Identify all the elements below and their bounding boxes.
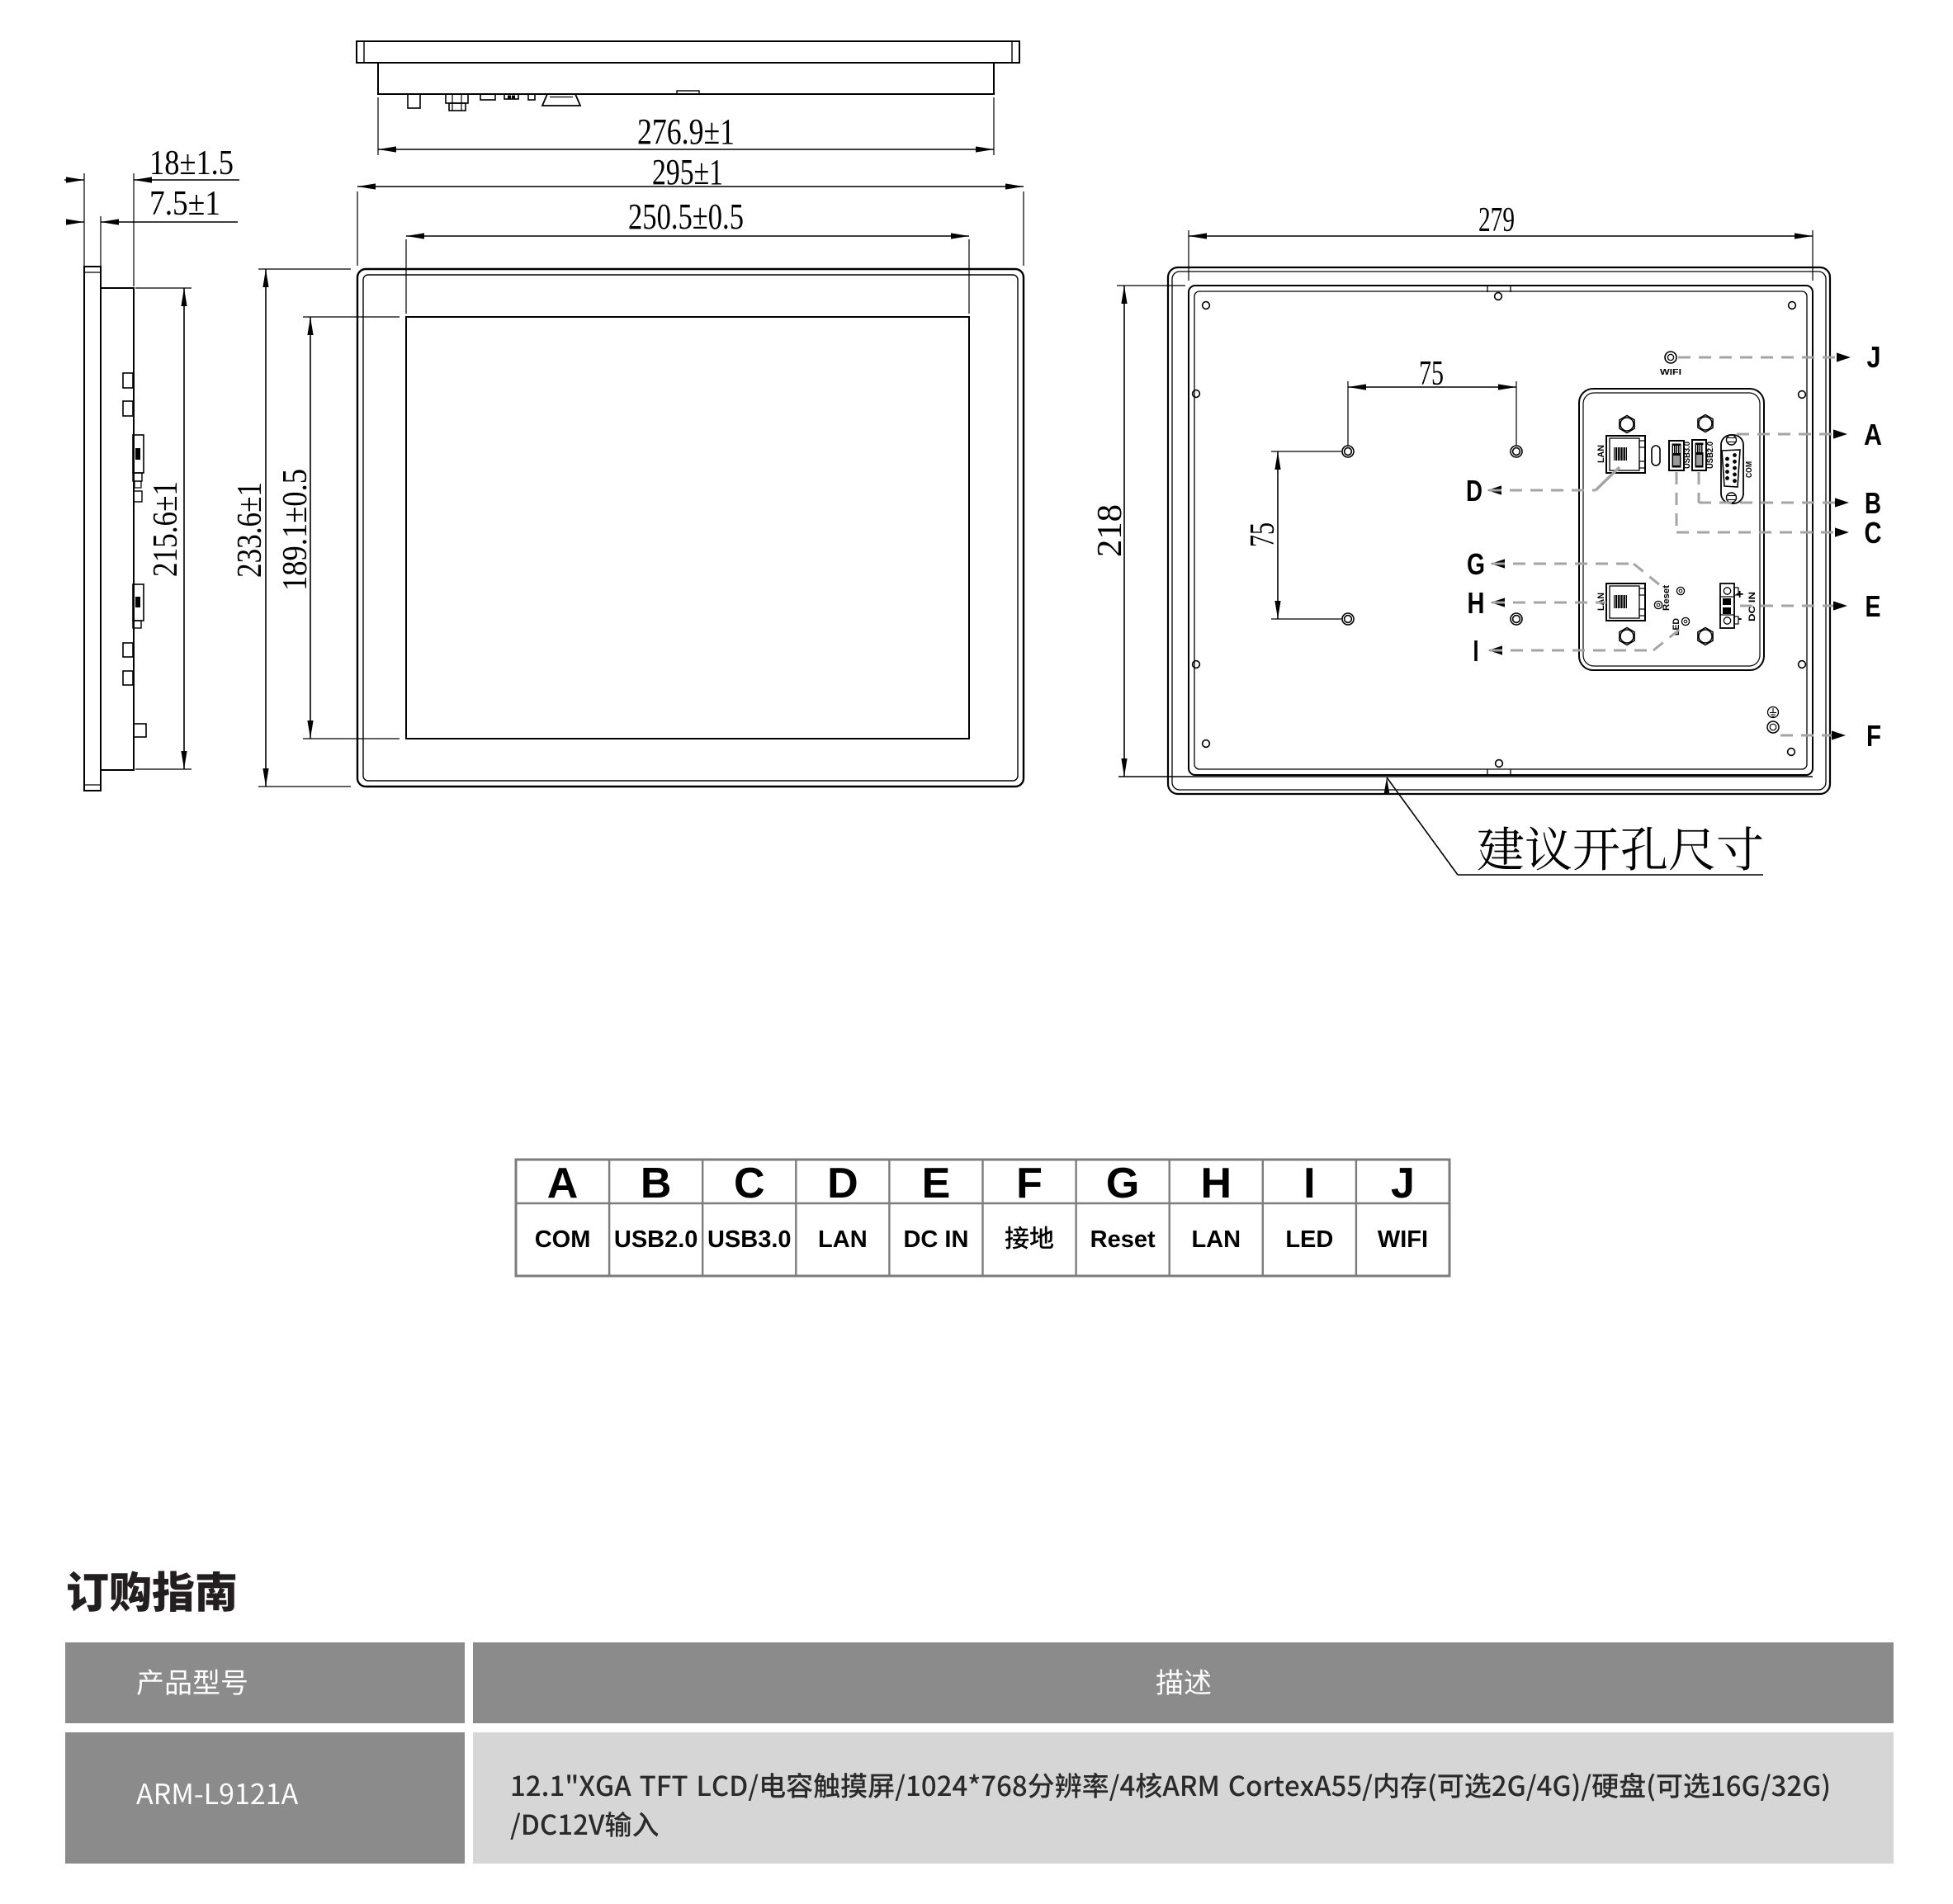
svg-text:A: A xyxy=(1864,418,1882,451)
svg-text:J: J xyxy=(1391,1160,1415,1207)
svg-text:B: B xyxy=(1865,486,1881,520)
svg-text:J: J xyxy=(1867,340,1881,374)
svg-text:+: + xyxy=(1736,588,1743,602)
svg-text:B: B xyxy=(641,1160,672,1207)
svg-text:189.1±0.5: 189.1±0.5 xyxy=(277,469,314,591)
svg-text:DC IN: DC IN xyxy=(903,1226,968,1253)
svg-text:233.6±1: 233.6±1 xyxy=(231,482,269,578)
svg-text:E: E xyxy=(922,1160,951,1207)
svg-text:H: H xyxy=(1468,586,1485,620)
svg-text:USB3.0: USB3.0 xyxy=(707,1226,792,1253)
svg-text:18±1.5: 18±1.5 xyxy=(149,144,234,182)
svg-text:75: 75 xyxy=(1419,355,1444,393)
svg-text:F: F xyxy=(1866,719,1881,753)
svg-text:I: I xyxy=(1303,1160,1315,1207)
svg-text:G: G xyxy=(1106,1160,1139,1207)
svg-text:G: G xyxy=(1467,547,1485,581)
svg-text:WIFI: WIFI xyxy=(1660,368,1681,377)
svg-text:LAN: LAN xyxy=(1191,1226,1241,1253)
svg-text:USB2.0: USB2.0 xyxy=(1706,442,1715,469)
svg-text:COM: COM xyxy=(1745,461,1754,478)
svg-text:H: H xyxy=(1200,1160,1232,1207)
svg-text:WIFI: WIFI xyxy=(1378,1226,1428,1253)
svg-text:E: E xyxy=(1866,589,1881,623)
svg-text:C: C xyxy=(734,1160,765,1207)
svg-text:LED: LED xyxy=(1285,1226,1333,1253)
svg-text:USB2.0: USB2.0 xyxy=(614,1226,698,1253)
svg-text:C: C xyxy=(1865,516,1882,550)
svg-text:D: D xyxy=(1466,474,1482,508)
svg-text:218: 218 xyxy=(1091,504,1129,557)
svg-text:279: 279 xyxy=(1478,201,1515,239)
svg-text:276.9±1: 276.9±1 xyxy=(637,111,735,152)
svg-text:D: D xyxy=(827,1160,858,1207)
svg-text:75: 75 xyxy=(1244,522,1282,547)
svg-text:LAN: LAN xyxy=(818,1226,868,1253)
svg-text:F: F xyxy=(1016,1160,1043,1207)
svg-text:COM: COM xyxy=(535,1226,591,1253)
svg-text:LAN: LAN xyxy=(1596,445,1606,463)
svg-text:7.5±1: 7.5±1 xyxy=(149,185,220,223)
svg-text:A: A xyxy=(547,1160,579,1207)
svg-text:Reset: Reset xyxy=(1090,1226,1156,1253)
svg-text:Reset: Reset xyxy=(1662,585,1672,611)
svg-text:250.5±0.5: 250.5±0.5 xyxy=(628,196,744,237)
svg-text:-: - xyxy=(1738,612,1742,626)
svg-text:295±1: 295±1 xyxy=(652,152,723,192)
svg-text:USB3.0: USB3.0 xyxy=(1683,442,1692,469)
svg-text:I: I xyxy=(1473,634,1479,668)
svg-text:215.6±1: 215.6±1 xyxy=(147,481,185,577)
